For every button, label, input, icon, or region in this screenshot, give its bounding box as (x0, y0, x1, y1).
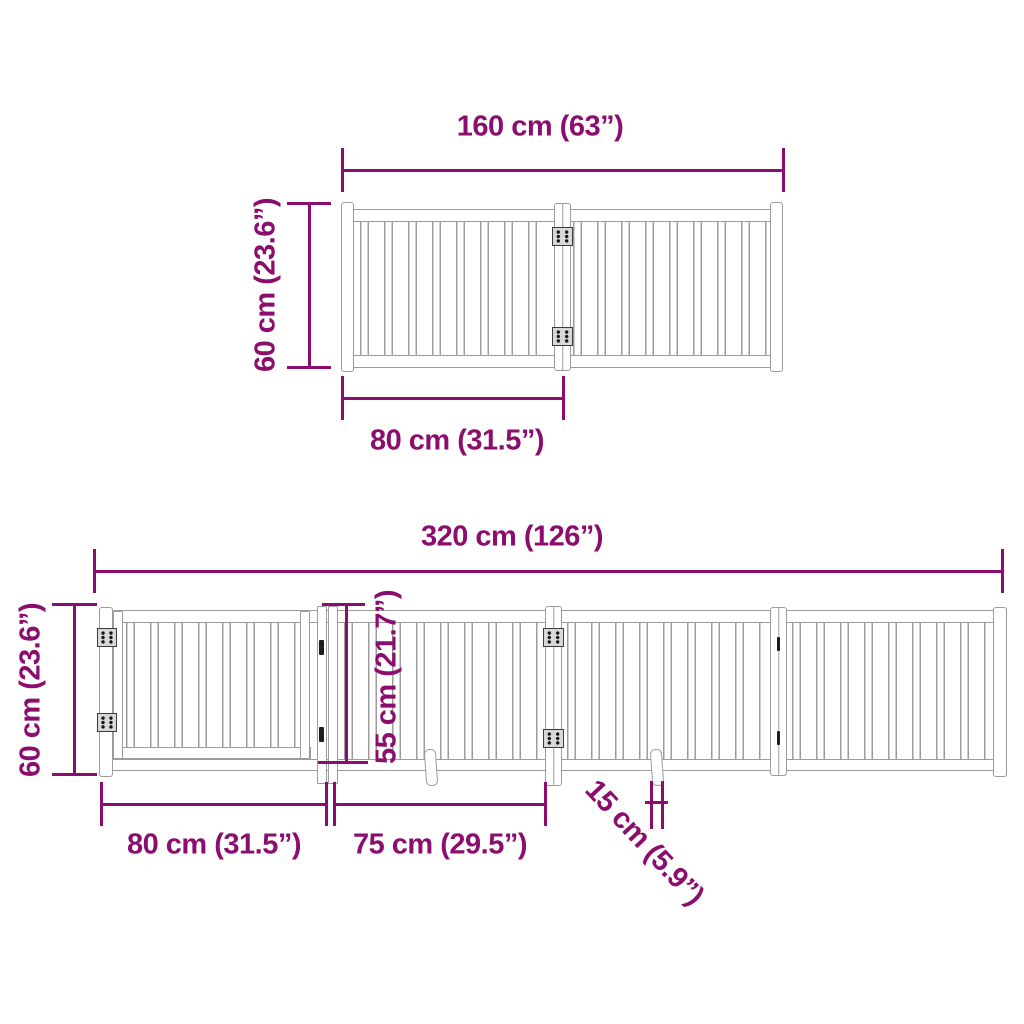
mid-post-hinge-lower (543, 729, 564, 748)
door-height-dim-tick-top (322, 603, 365, 606)
top-fence-hinge-upper (552, 227, 573, 246)
door-slats (126, 622, 298, 747)
bottom-fence-folding-post-right (770, 607, 787, 776)
door-width-dim-tick-left (100, 782, 103, 826)
top-total-width-label: 160 cm (63”) (457, 111, 624, 144)
door-bottom-rail (113, 747, 311, 759)
top-fence-left-end-post (341, 202, 354, 372)
door-right-stile (300, 611, 310, 759)
top-fence-left-panel-slats (360, 221, 552, 356)
top-width-dim-tick-right (782, 148, 785, 192)
bottom-height-dim-tick-top (52, 603, 97, 606)
top-panel-dim-tick-left (341, 376, 344, 420)
door-latch-post-front (317, 606, 327, 784)
folding-post-right-fold-line (778, 608, 780, 775)
top-panel-width-label: 80 cm (31.5”) (370, 425, 544, 458)
right-post-hinge-upper (777, 637, 780, 651)
bottom-total-width-label: 320 cm (126”) (421, 521, 603, 554)
top-fence-right-end-post (770, 202, 783, 372)
door-hinge-upper (97, 628, 117, 647)
bottom-height-dim-line (73, 604, 76, 776)
bottom-width-dim-line (94, 570, 1003, 573)
door-width-label: 80 cm (31.5”) (127, 829, 301, 862)
mid-post-hinge-upper (543, 628, 564, 647)
top-fence-hinge-lower (552, 327, 573, 346)
panel-width-dim-line (334, 803, 546, 806)
door-height-dim-line (345, 604, 348, 763)
top-width-dim-line (342, 169, 784, 172)
door-hinge-lower (97, 713, 117, 732)
panel-width-dim-tick-right (544, 782, 547, 826)
foot-dim-tick-left (650, 781, 653, 829)
door-latch-upper (319, 640, 324, 655)
panel4-slats (792, 622, 989, 759)
door-latch-lower (319, 727, 324, 742)
right-post-hinge-lower (777, 731, 780, 745)
door-width-dim-line (101, 803, 326, 806)
foot-dim-tick-right (661, 781, 664, 829)
top-height-dim-line (308, 203, 311, 368)
top-fence-right-panel-slats (573, 221, 768, 356)
top-panel-dim-line (342, 397, 564, 400)
top-height-dim-tick-top (287, 202, 331, 205)
top-height-dim-tick-bottom (287, 366, 331, 369)
bottom-width-dim-tick-left (93, 549, 96, 593)
bottom-height-dim-tick-bottom (52, 773, 97, 776)
door-height-dim-tick-bottom (318, 761, 368, 764)
bottom-width-dim-tick-right (1001, 549, 1004, 593)
panel-width-label: 75 cm (29.5”) (353, 829, 527, 862)
panel3-slats (567, 622, 765, 759)
support-foot-left (424, 749, 439, 787)
door-width-dim-tick-right (325, 782, 328, 826)
top-panel-dim-tick-right (562, 376, 565, 420)
top-height-label: 60 cm (23.6”) (250, 198, 283, 372)
top-width-dim-tick-left (341, 148, 344, 192)
door-height-label: 55 cm (21.7”) (371, 590, 404, 764)
bottom-height-label: 60 cm (23.6”) (15, 603, 48, 777)
product-dimension-diagram: 160 cm (63”) 60 cm (23.6”) 80 cm (31.5”)… (0, 0, 1024, 1024)
door-latch-post-back (328, 606, 338, 784)
foot-dim-connector (645, 801, 668, 804)
panel-width-dim-tick-left (333, 782, 336, 826)
foot-length-label: 15 cm (5.9”) (578, 774, 710, 912)
bottom-fence-right-end-post (993, 607, 1007, 777)
